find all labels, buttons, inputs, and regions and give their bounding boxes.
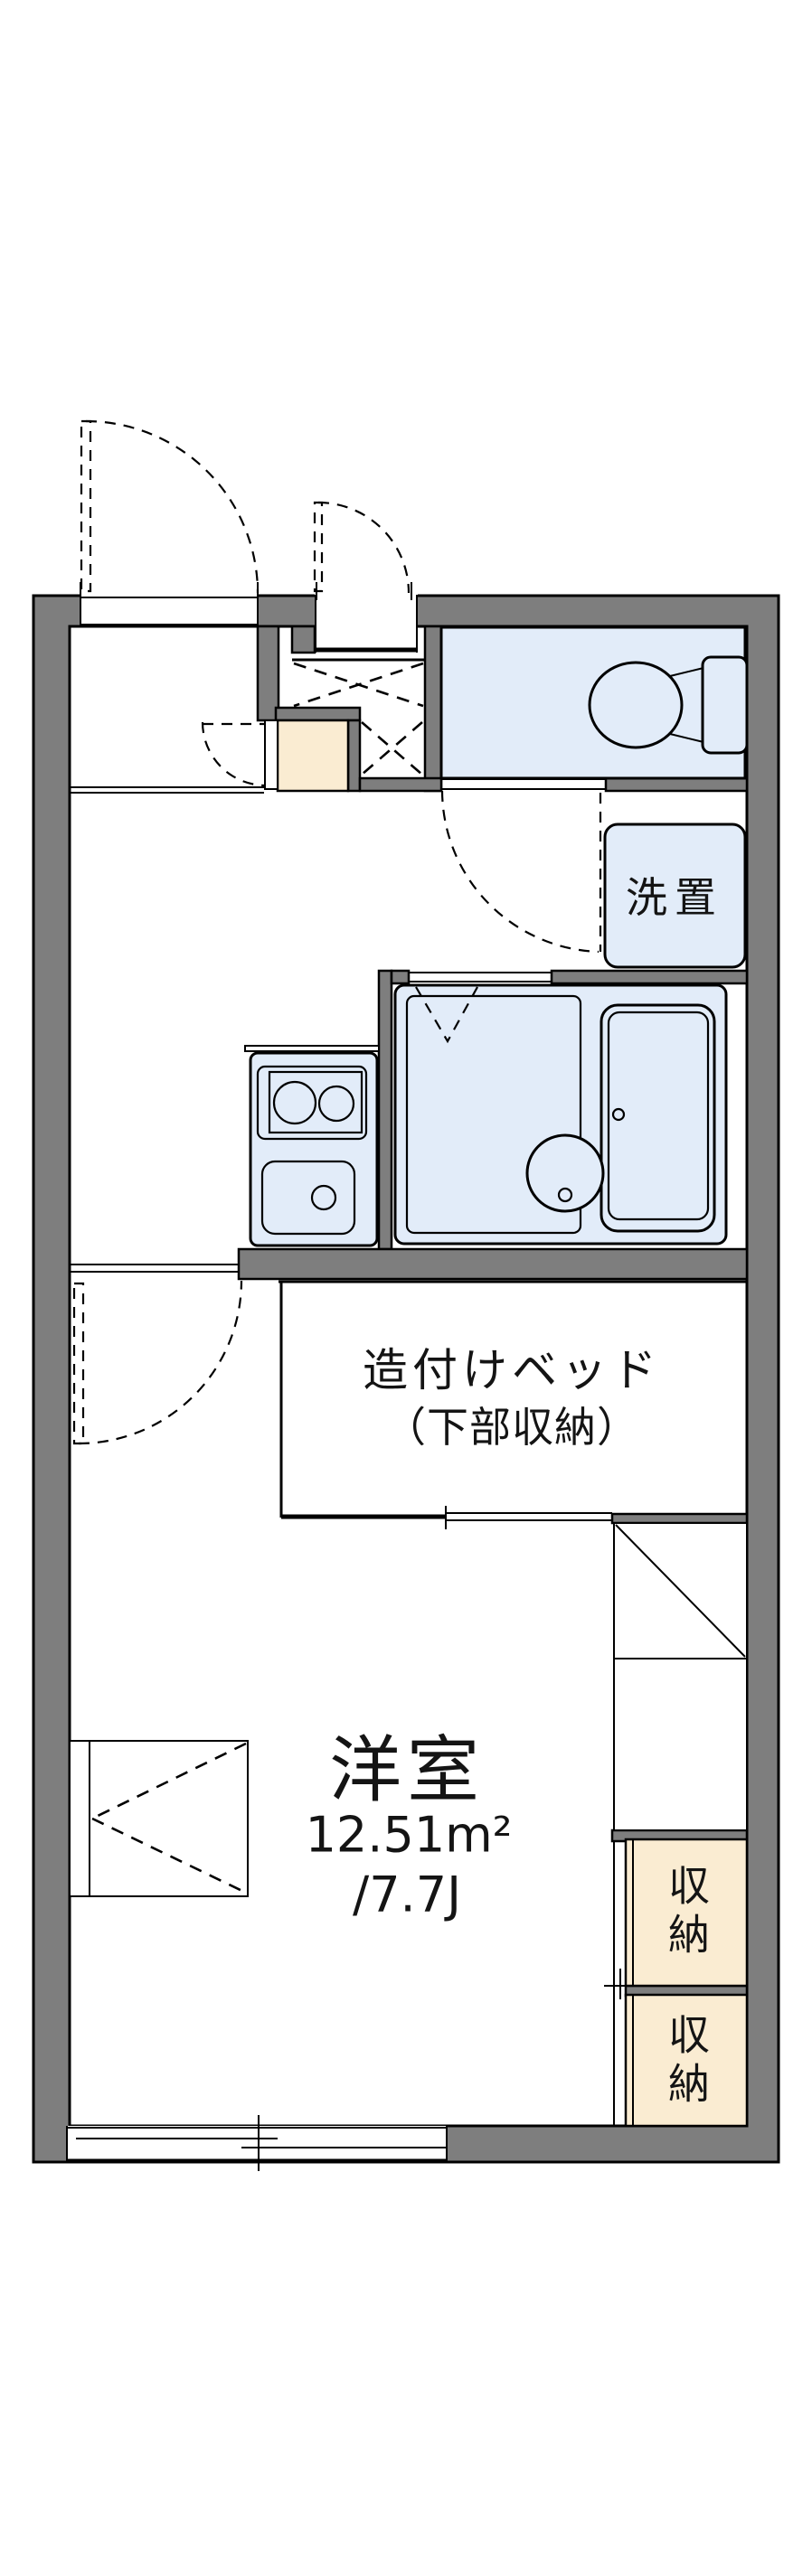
bed-label-line1: 造付けベッド bbox=[363, 1334, 661, 1399]
kitchen-counter bbox=[245, 1046, 379, 1246]
top-window-opening bbox=[80, 594, 259, 626]
bed-label-line2: （下部収納） bbox=[384, 1395, 639, 1454]
entrance-tile bbox=[278, 720, 348, 791]
outside-large-door-swing bbox=[81, 421, 258, 593]
storage-lower-label: 収納 bbox=[668, 2011, 710, 2110]
entrance-door-swing bbox=[315, 503, 409, 593]
room-door-swing bbox=[74, 1281, 241, 1443]
hall-door-swing bbox=[203, 722, 266, 785]
room-area-label: 12.51m² bbox=[306, 1807, 513, 1864]
laundry-label: 洗置 bbox=[626, 865, 723, 925]
storage-upper-label: 収納 bbox=[668, 1862, 710, 1960]
corner-cabinet bbox=[70, 1741, 248, 1896]
stove-icon bbox=[258, 1067, 366, 1139]
hall-door-leaf bbox=[265, 720, 278, 789]
room-name-label: 洋室 bbox=[329, 1712, 485, 1817]
bathtub-icon bbox=[601, 1005, 714, 1231]
sink-icon bbox=[262, 1161, 354, 1234]
bathroom bbox=[395, 985, 726, 1244]
entrance-hall bbox=[265, 660, 425, 791]
floor-plan: 洗置 造付けベッド （下部収納） 洋室 12.51m² /7.7J 収納 収納 bbox=[0, 0, 812, 2576]
toilet-door-swing bbox=[442, 791, 600, 952]
entrance-recess bbox=[315, 589, 418, 653]
floor-plan-drawing bbox=[0, 0, 812, 2576]
shower-drain-icon bbox=[527, 1135, 603, 1211]
room-tatami-label: /7.7J bbox=[353, 1866, 461, 1923]
door-swings bbox=[74, 421, 600, 1443]
toilet-room bbox=[441, 627, 747, 778]
